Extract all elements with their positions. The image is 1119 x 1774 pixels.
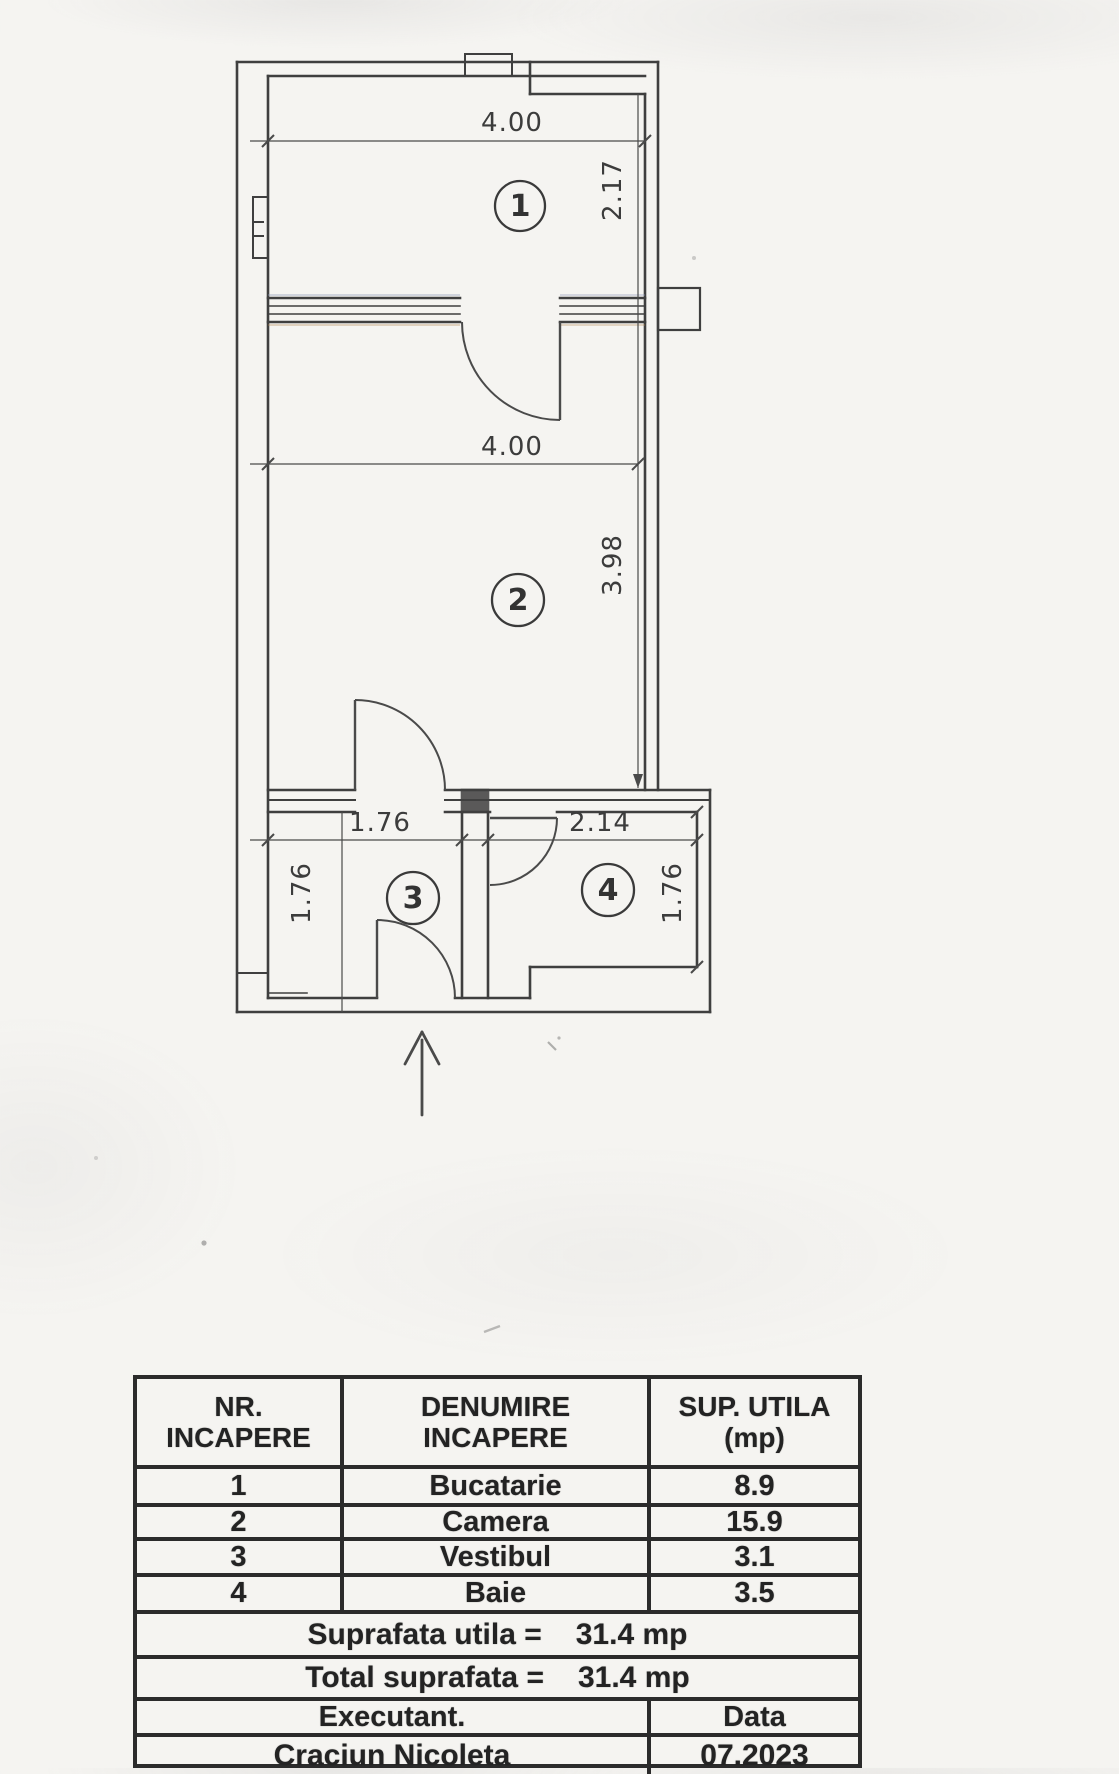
room-nr: 4 <box>137 1577 344 1610</box>
date-label: Data <box>651 1701 858 1733</box>
table-row: 4 Baie 3.5 <box>137 1577 858 1614</box>
executant-name-row: Craciun Nicoleta 07.2023 <box>137 1737 858 1774</box>
scan-color-fringe <box>268 295 645 325</box>
entrance-door <box>377 920 455 998</box>
room-1-label: 1 <box>510 189 531 224</box>
executant-label: Executant. <box>137 1701 651 1733</box>
right-shaft <box>658 288 700 330</box>
doors <box>355 322 560 998</box>
room-area: 3.5 <box>651 1577 858 1610</box>
table-row: 3 Vestibul 3.1 <box>137 1541 858 1577</box>
room-area: 15.9 <box>651 1507 858 1537</box>
dim-room4-height: 1.76 <box>658 862 688 924</box>
executant-name: Craciun Nicoleta <box>137 1737 651 1774</box>
door-room4 <box>490 818 557 885</box>
date-value: 07.2023 <box>651 1737 858 1774</box>
header-nr-incapere: NR. INCAPERE <box>137 1379 344 1465</box>
left-wall-recess <box>253 197 268 258</box>
room-nr: 1 <box>137 1469 344 1503</box>
scan-artifacts <box>94 256 696 1332</box>
total-useful-area-label: Suprafata utila = <box>308 1618 542 1652</box>
room-nr: 3 <box>137 1541 344 1573</box>
room-area: 3.1 <box>651 1541 858 1573</box>
door-room2-room3 <box>355 700 445 790</box>
executant-header-row: Executant. Data <box>137 1701 858 1737</box>
room-name: Baie <box>344 1577 651 1610</box>
total-area-label: Total suprafata = <box>305 1661 544 1695</box>
dim-room3-width: 1.76 <box>349 808 411 838</box>
scanned-floorplan-document: { "plan": { "room_labels": ["1", "2", "3… <box>0 0 1119 1768</box>
dim-room2-width: 4.00 <box>481 432 543 462</box>
room-2-marker: 2 <box>492 574 544 626</box>
door-room1-room2 <box>462 322 560 420</box>
room-3-marker: 3 <box>387 872 439 924</box>
header-sup-utila: SUP. UTILA (mp) <box>651 1379 858 1465</box>
room-1-marker: 1 <box>495 181 545 231</box>
room-4-marker: 4 <box>582 864 634 916</box>
dim-room1-width: 4.00 <box>481 108 543 138</box>
header-denumire-incapere: DENUMIRE INCAPERE <box>344 1379 651 1465</box>
total-useful-area-row: Suprafata utila = 31.4 mp <box>137 1614 858 1659</box>
dim-room1-height: 2.17 <box>598 159 628 221</box>
dim-room2-height: 3.98 <box>598 534 628 596</box>
entrance-arrow-icon <box>405 1032 439 1115</box>
dimension-lines <box>250 94 703 1012</box>
total-area-row: Total suprafata = 31.4 mp <box>137 1659 858 1701</box>
room-name: Bucatarie <box>344 1469 651 1503</box>
table-row: 2 Camera 15.9 <box>137 1507 858 1541</box>
room-area: 8.9 <box>651 1469 858 1503</box>
top-wall-notch <box>465 54 512 76</box>
room-nr: 2 <box>137 1507 344 1537</box>
table-row: 1 Bucatarie 8.9 <box>137 1469 858 1507</box>
room-area-table: NR. INCAPERE DENUMIRE INCAPERE SUP. UTIL… <box>133 1375 862 1768</box>
table-header-row: NR. INCAPERE DENUMIRE INCAPERE SUP. UTIL… <box>137 1379 858 1469</box>
room-name: Vestibul <box>344 1541 651 1573</box>
dim-room4-width: 2.14 <box>569 808 631 838</box>
room-4-label: 4 <box>598 873 619 908</box>
room-2-label: 2 <box>508 583 529 618</box>
total-area-value: 31.4 mp <box>578 1661 690 1695</box>
room-3-label: 3 <box>403 881 424 916</box>
total-useful-area-value: 31.4 mp <box>576 1618 688 1652</box>
room-name: Camera <box>344 1507 651 1537</box>
dim-room3-height: 1.76 <box>287 862 317 924</box>
